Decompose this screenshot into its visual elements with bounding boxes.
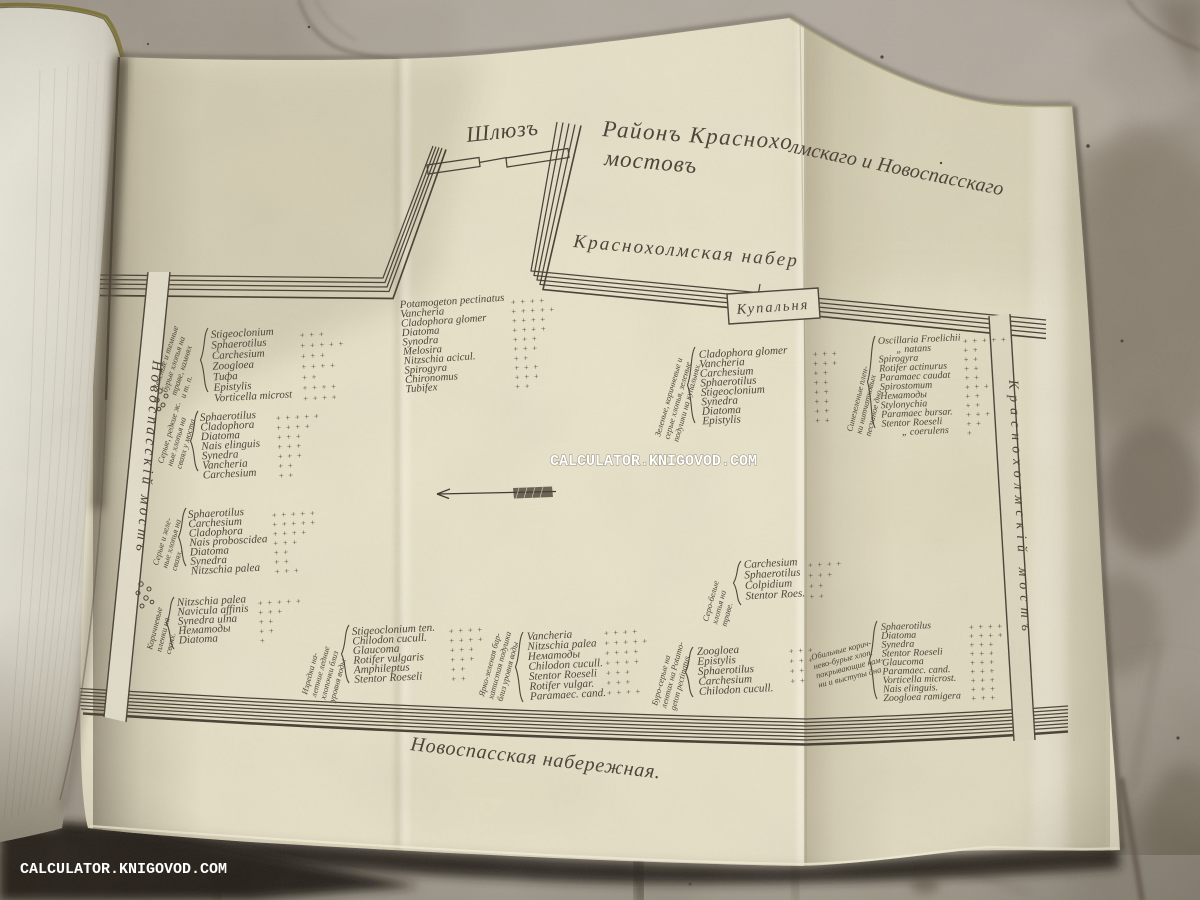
svg-text:CALCULATOR.KNIGOVOD.COM: CALCULATOR.KNIGOVOD.COM (20, 861, 227, 878)
svg-text:CALCULATOR.KNIGOVOD.COM: CALCULATOR.KNIGOVOD.COM (550, 453, 757, 470)
